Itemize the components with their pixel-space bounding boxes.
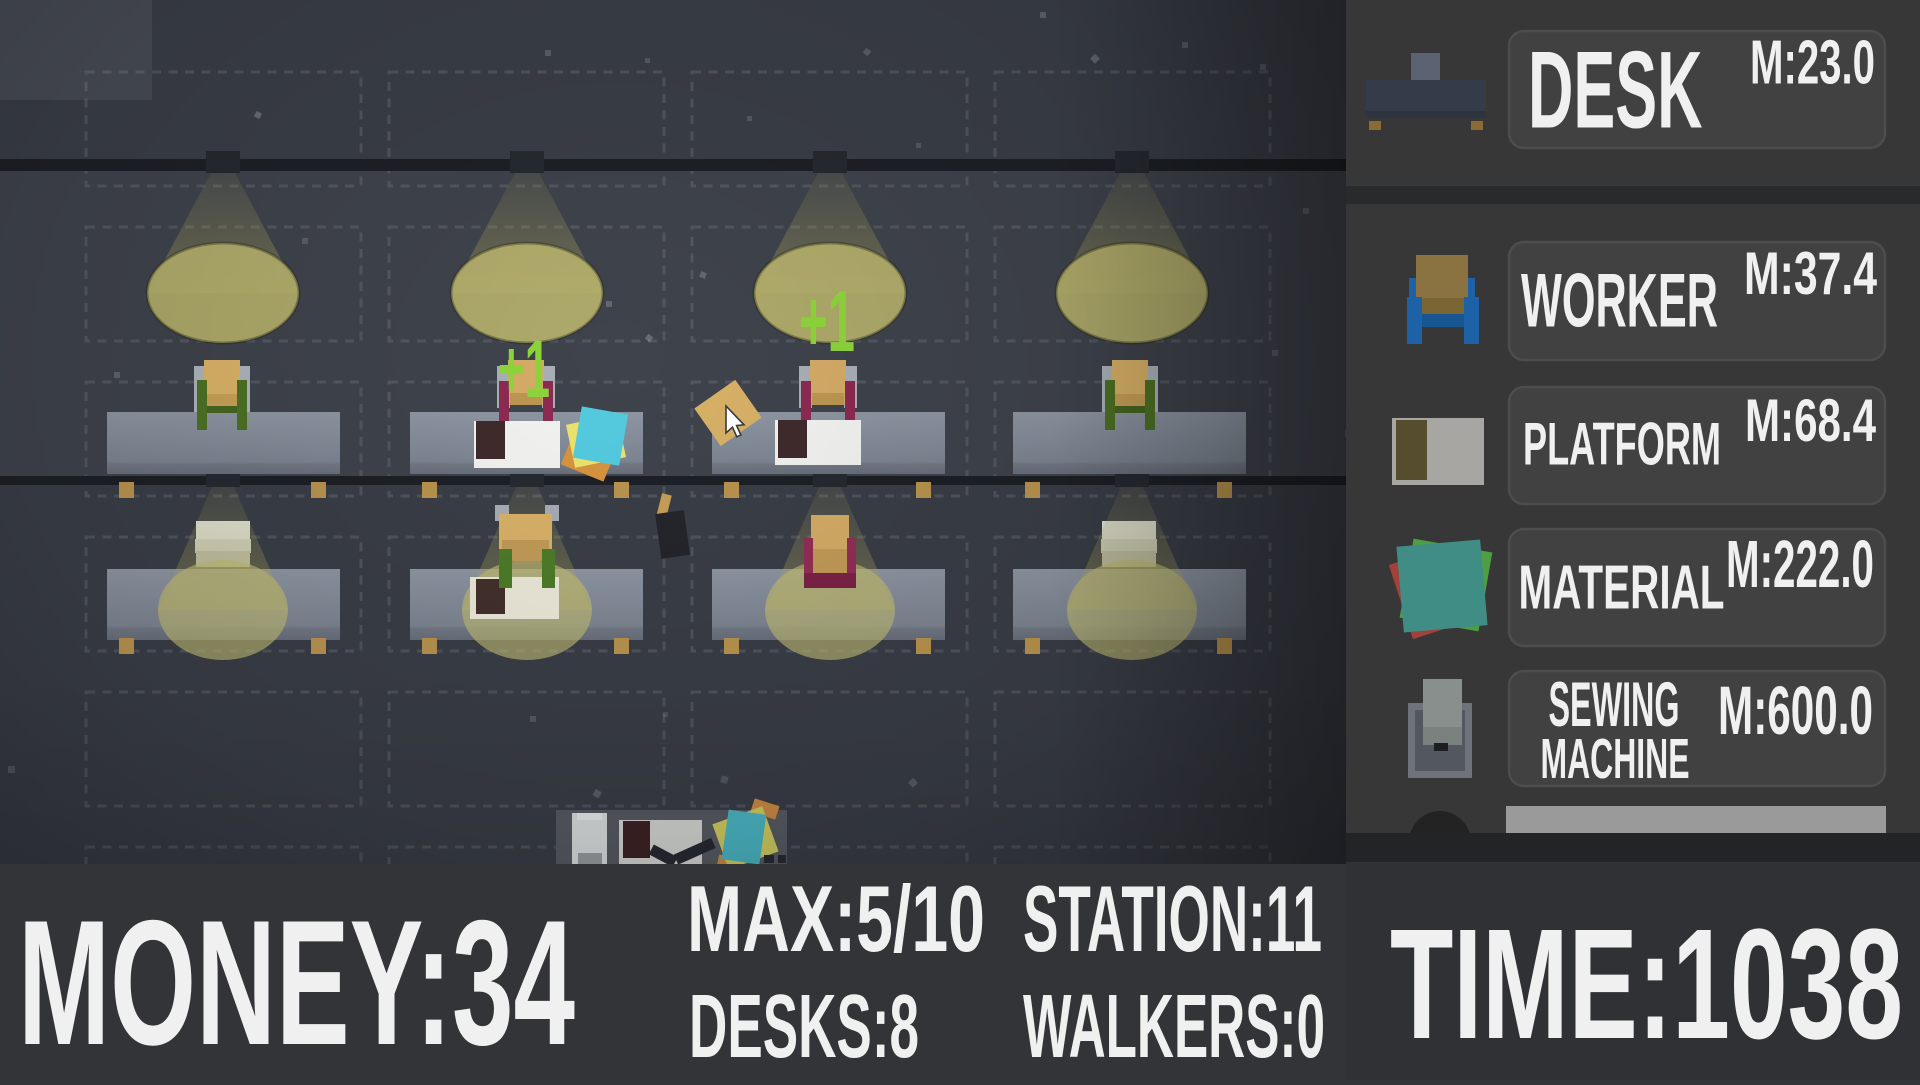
svg-text:M:222.0: M:222.0	[1726, 528, 1874, 602]
svg-text:MACHINE: MACHINE	[1541, 727, 1690, 790]
svg-text:WALKERS:0: WALKERS:0	[1023, 977, 1325, 1077]
svg-text:M:600.0: M:600.0	[1718, 672, 1873, 749]
svg-text:MAX:5/10: MAX:5/10	[687, 866, 985, 971]
svg-text:DESK: DESK	[1528, 30, 1703, 152]
svg-text:MONEY:34: MONEY:34	[18, 883, 575, 1080]
svg-text:TIME:1038: TIME:1038	[1390, 897, 1903, 1072]
svg-text:M:37.4: M:37.4	[1744, 240, 1877, 307]
svg-text:M:23.0: M:23.0	[1750, 29, 1875, 98]
svg-text:DESKS:8: DESKS:8	[689, 977, 919, 1077]
svg-text:PLATFORM: PLATFORM	[1523, 411, 1721, 478]
svg-text:M:68.4: M:68.4	[1745, 387, 1876, 454]
svg-text:WORKER: WORKER	[1521, 259, 1718, 344]
svg-text:MATERIAL: MATERIAL	[1519, 554, 1725, 623]
svg-text:STATION:11: STATION:11	[1023, 866, 1322, 971]
